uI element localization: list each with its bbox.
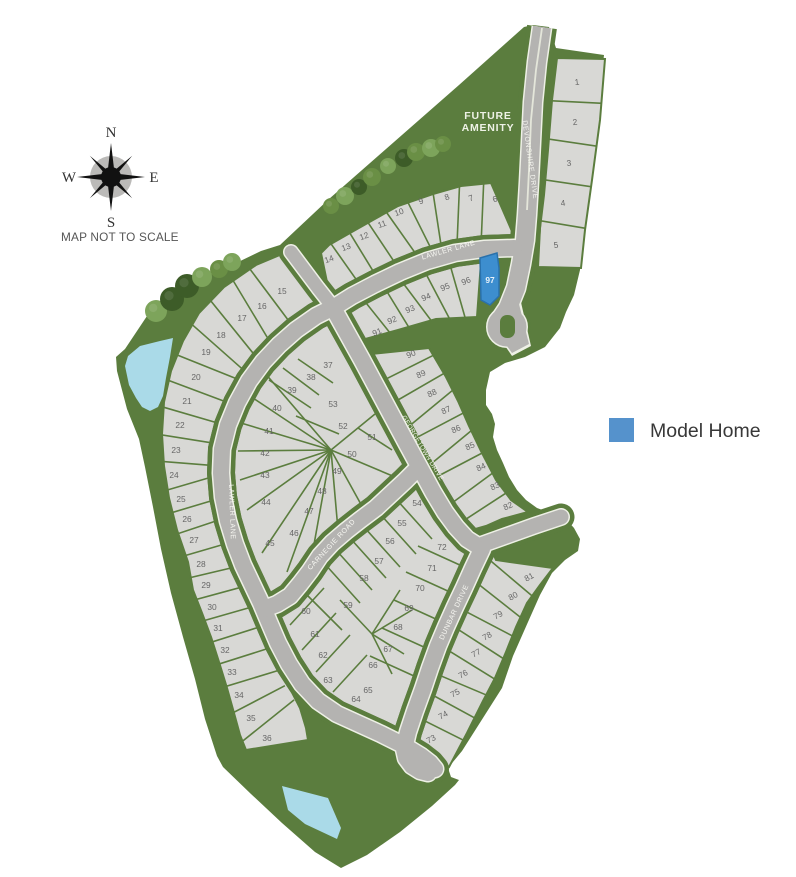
svg-text:33: 33	[227, 667, 237, 677]
svg-text:37: 37	[323, 360, 333, 370]
svg-text:34: 34	[234, 690, 244, 700]
svg-text:56: 56	[385, 536, 395, 546]
svg-text:40: 40	[272, 403, 282, 413]
svg-text:MAP NOT TO SCALE: MAP NOT TO SCALE	[61, 230, 179, 244]
svg-text:N: N	[106, 125, 117, 141]
svg-text:55: 55	[397, 518, 407, 528]
svg-text:97: 97	[485, 275, 495, 285]
svg-text:35: 35	[246, 713, 256, 723]
svg-text:60: 60	[301, 606, 311, 616]
svg-text:22: 22	[175, 420, 185, 430]
svg-text:72: 72	[437, 542, 447, 552]
svg-text:16: 16	[257, 301, 267, 311]
svg-text:57: 57	[374, 556, 384, 566]
svg-text:50: 50	[347, 449, 357, 459]
svg-text:53: 53	[328, 399, 338, 409]
svg-text:58: 58	[359, 573, 369, 583]
svg-text:68: 68	[393, 622, 403, 632]
svg-text:61: 61	[310, 629, 320, 639]
svg-text:44: 44	[261, 497, 271, 507]
svg-text:30: 30	[207, 602, 217, 612]
svg-text:15: 15	[277, 286, 287, 296]
svg-text:51: 51	[367, 432, 377, 442]
svg-text:38: 38	[306, 372, 316, 382]
svg-text:47: 47	[304, 506, 314, 516]
svg-text:28: 28	[196, 559, 206, 569]
svg-text:18: 18	[216, 330, 226, 340]
svg-text:23: 23	[171, 445, 181, 455]
svg-text:67: 67	[383, 644, 393, 654]
svg-text:21: 21	[182, 396, 192, 406]
svg-text:25: 25	[176, 494, 186, 504]
svg-text:32: 32	[220, 645, 230, 655]
svg-text:S: S	[107, 215, 115, 231]
svg-text:FUTURE: FUTURE	[464, 110, 511, 122]
svg-text:31: 31	[213, 623, 223, 633]
svg-text:59: 59	[343, 600, 353, 610]
svg-text:41: 41	[264, 426, 274, 436]
svg-text:17: 17	[237, 313, 247, 323]
svg-text:63: 63	[323, 675, 333, 685]
svg-text:70: 70	[415, 583, 425, 593]
svg-text:64: 64	[351, 694, 361, 704]
svg-text:49: 49	[332, 466, 342, 476]
svg-text:Model Home: Model Home	[650, 420, 761, 442]
svg-text:48: 48	[317, 486, 327, 496]
svg-text:42: 42	[260, 448, 270, 458]
svg-text:AMENITY: AMENITY	[462, 122, 515, 134]
svg-text:46: 46	[289, 528, 299, 538]
svg-text:29: 29	[201, 580, 211, 590]
svg-text:36: 36	[262, 733, 272, 743]
svg-text:62: 62	[318, 650, 328, 660]
svg-text:E: E	[149, 170, 158, 186]
svg-text:54: 54	[412, 498, 422, 508]
svg-text:19: 19	[201, 347, 211, 357]
svg-text:66: 66	[368, 660, 378, 670]
svg-text:26: 26	[182, 514, 192, 524]
svg-text:20: 20	[191, 372, 201, 382]
svg-text:45: 45	[265, 538, 275, 548]
svg-text:39: 39	[287, 385, 297, 395]
svg-text:43: 43	[260, 470, 270, 480]
svg-text:69: 69	[404, 603, 414, 613]
svg-text:24: 24	[169, 470, 179, 480]
svg-text:52: 52	[338, 421, 348, 431]
svg-text:71: 71	[427, 563, 437, 573]
svg-text:65: 65	[363, 685, 373, 695]
svg-text:27: 27	[189, 535, 199, 545]
svg-text:W: W	[62, 170, 77, 186]
